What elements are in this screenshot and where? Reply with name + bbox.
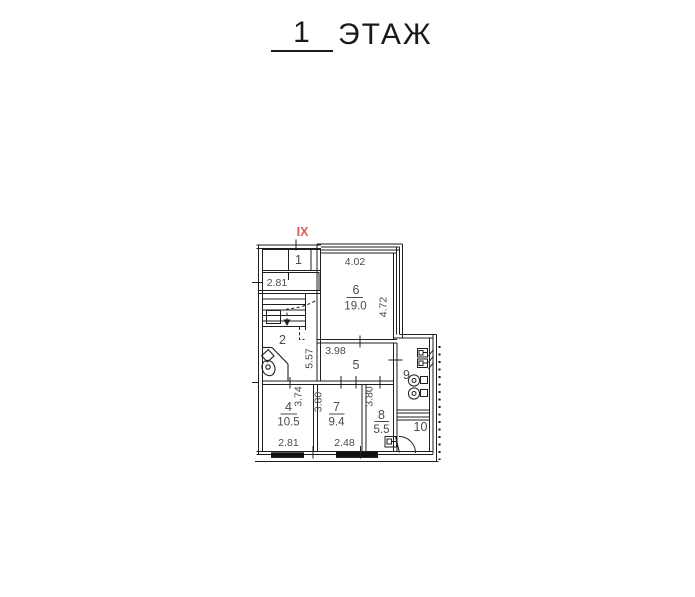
faucet-box (421, 377, 428, 384)
dim-room4-width: 2.81 (278, 437, 299, 449)
window-bar-room7 (336, 452, 378, 458)
floor-plan-drawing: IX 1 2.81 2 5.57 4.02 6 19.0 4.72 3.98 5… (0, 0, 695, 597)
room-8-number: 8 (378, 408, 385, 422)
stair-arrow-head (284, 320, 291, 327)
dim-room6-height: 4.72 (378, 297, 390, 318)
door-arc (399, 437, 416, 454)
dim-room1-width: 2.81 (267, 277, 288, 289)
room-5-number: 5 (353, 358, 360, 372)
bathroom-enclosure (260, 348, 288, 382)
stair-arrow-start (300, 327, 305, 340)
toilet-drain (266, 365, 270, 369)
dim-room7-height: 3.80 (313, 392, 325, 413)
axis-label-ix: IX (297, 225, 309, 239)
room-2-number: 2 (279, 333, 286, 347)
faucet-box (421, 390, 428, 397)
sink-icon (408, 388, 419, 399)
room-1-number: 1 (295, 253, 302, 267)
room10-door (396, 437, 416, 454)
floorplan-page: 1 ЭТАЖ (0, 0, 695, 597)
dim-room4-height: 3.74 (293, 386, 305, 407)
dim-room6-width: 4.02 (345, 256, 366, 268)
sink-icon (408, 375, 419, 386)
room-7-area: 9.4 (329, 417, 346, 429)
room-4-area: 10.5 (277, 417, 299, 429)
dim-room8-height: 3.80 (364, 386, 376, 407)
room-9-number: 9 (403, 368, 410, 382)
dim-room2-height: 5.57 (304, 348, 316, 369)
room-4-number: 4 (285, 400, 292, 414)
dim-room5-width: 3.98 (325, 345, 346, 357)
dim-room7-width: 2.48 (334, 437, 355, 449)
window-bar-room4 (271, 452, 304, 458)
electrical-panel-icon (385, 437, 397, 448)
staircase (263, 294, 316, 340)
room-8-area: 5.5 (374, 424, 390, 436)
room-6-area: 19.0 (344, 301, 366, 313)
room-7-number: 7 (333, 400, 340, 414)
room-10-number: 10 (414, 420, 428, 434)
room-6-number: 6 (353, 283, 360, 297)
